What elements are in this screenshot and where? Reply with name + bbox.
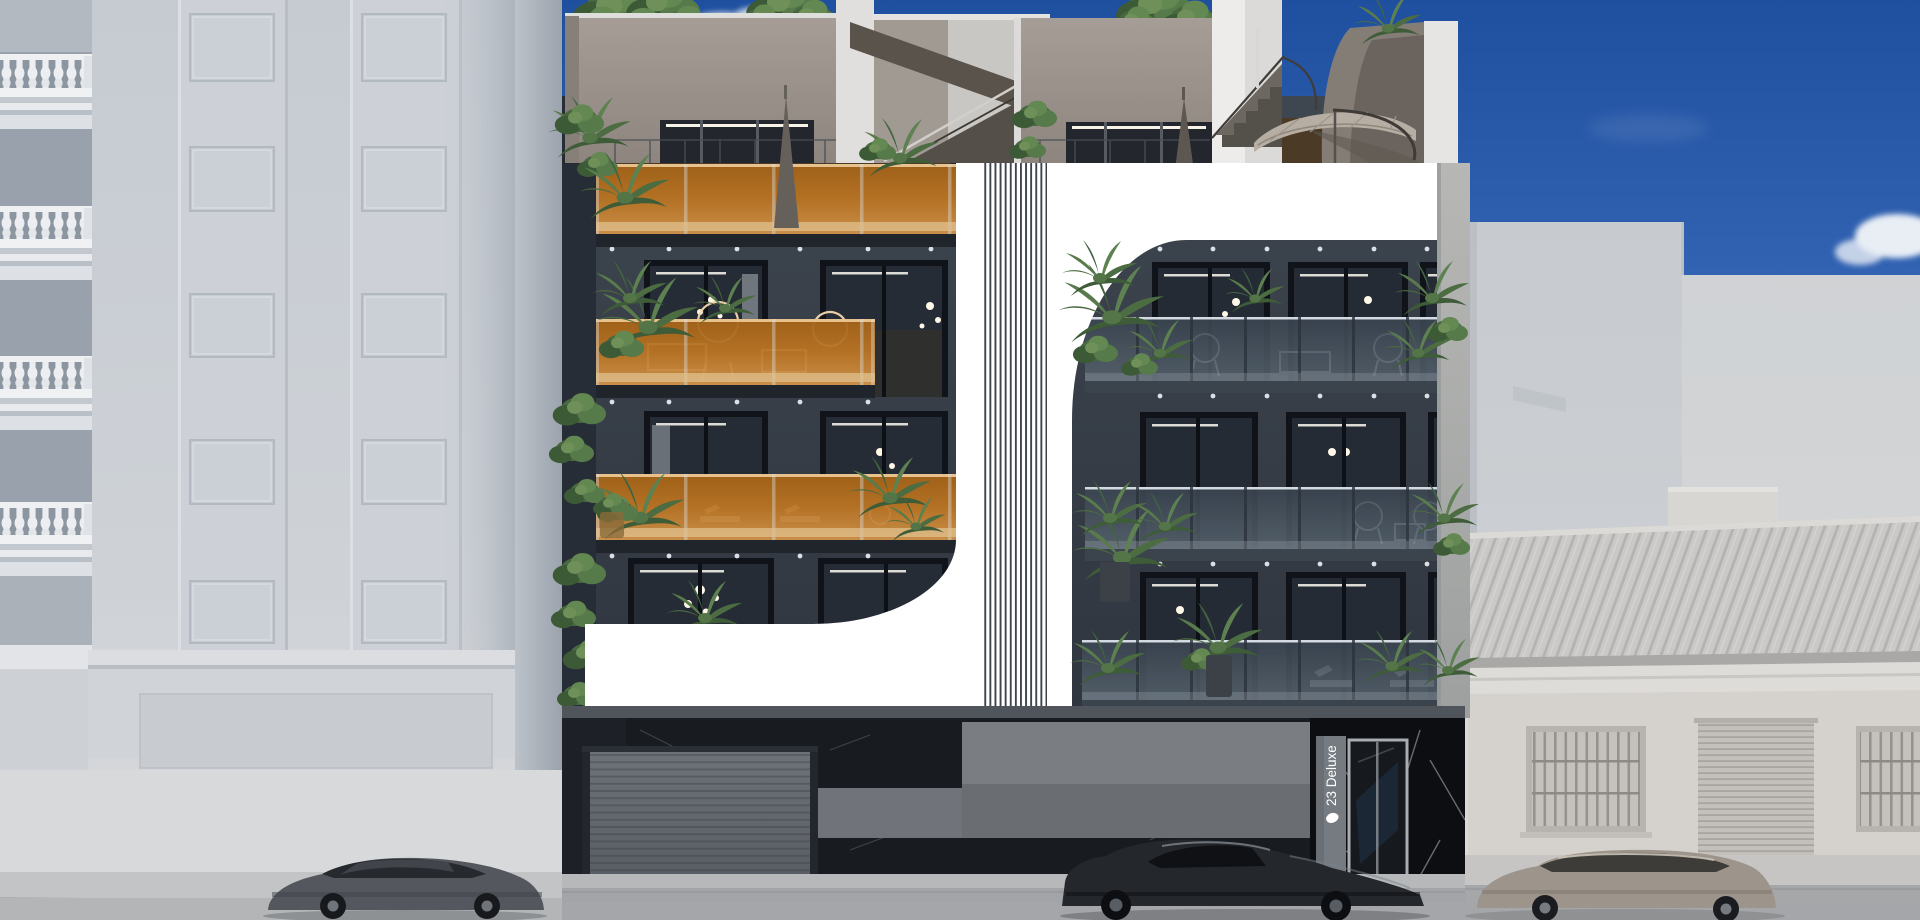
svg-text:23 Deluxe: 23 Deluxe	[1324, 745, 1339, 806]
